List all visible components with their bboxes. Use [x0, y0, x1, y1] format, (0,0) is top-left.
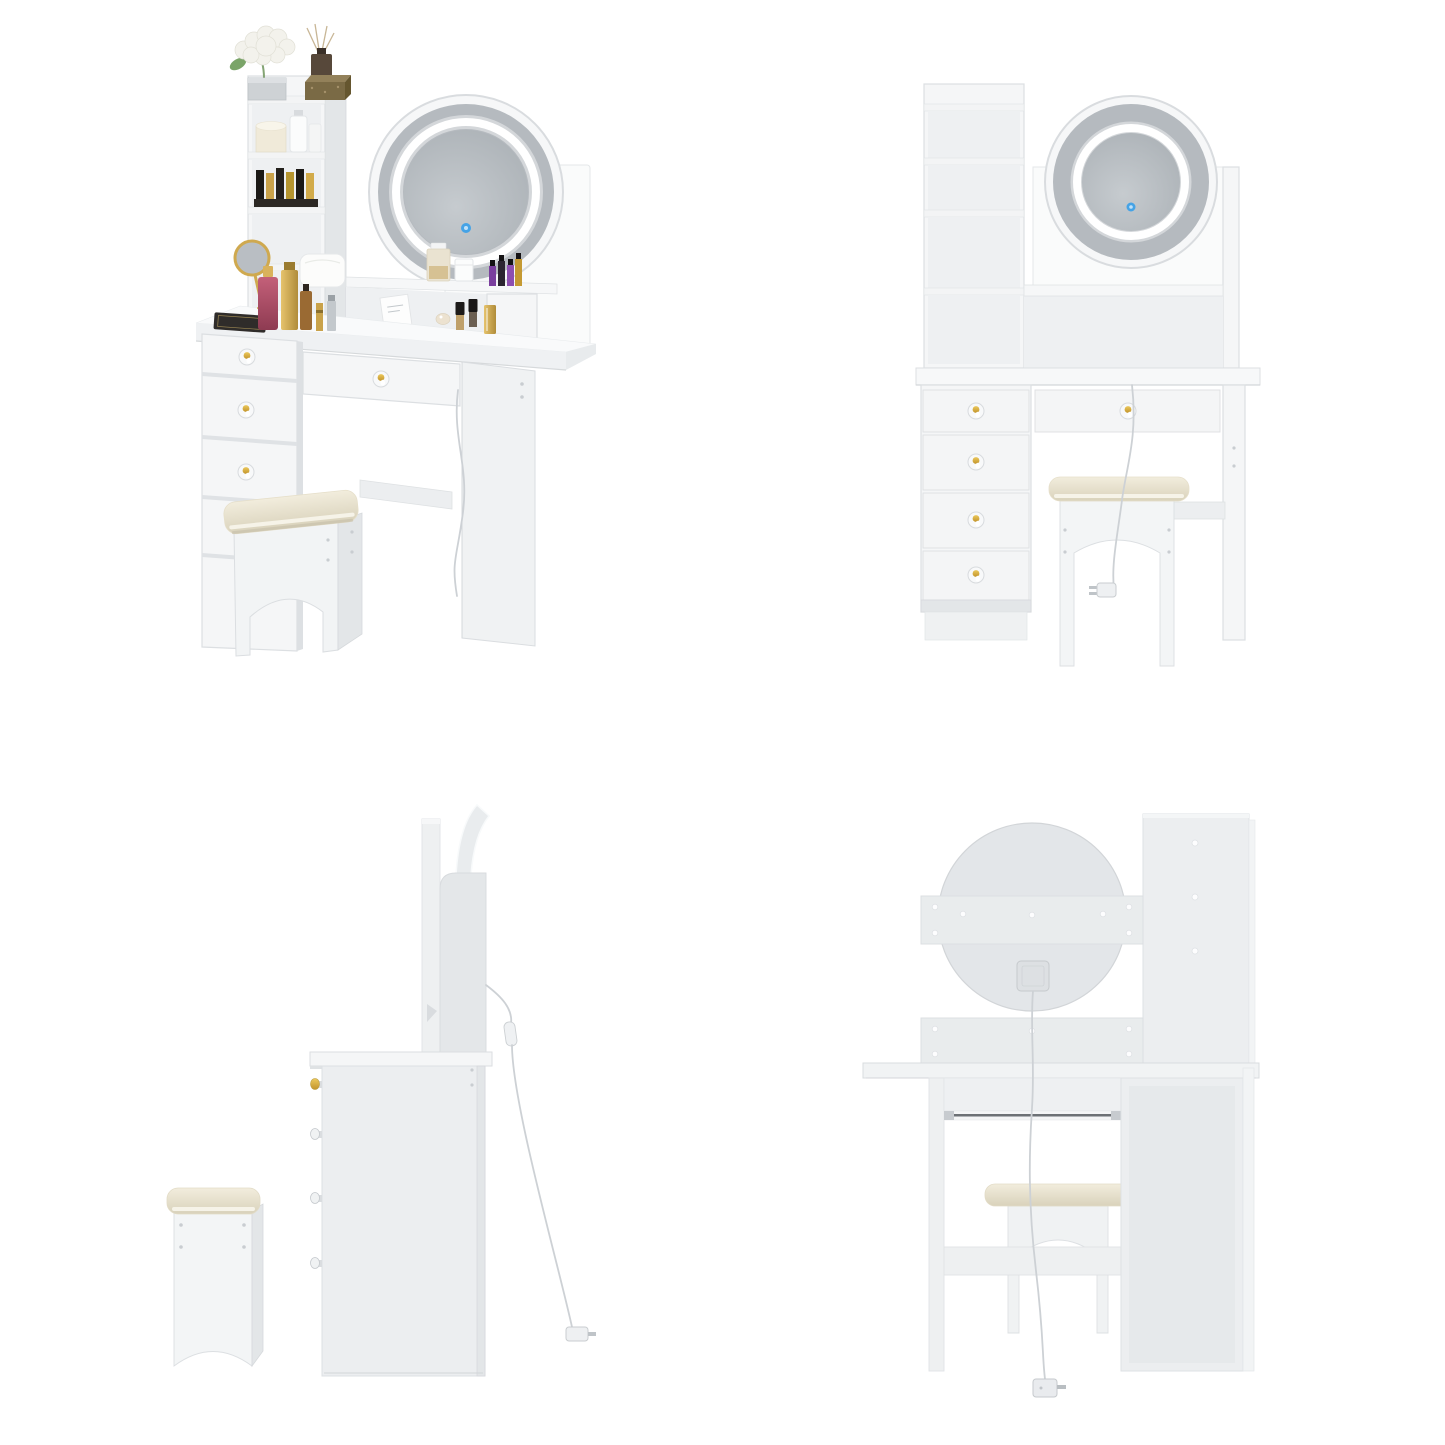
lipstick-box-set-decor: [254, 168, 318, 207]
stool-base: [174, 1213, 252, 1366]
drawer-knob: [238, 464, 254, 480]
drawer-knob-side: [311, 1079, 320, 1090]
product-image-grid: [0, 0, 1445, 1445]
shelf-tower: [924, 84, 1024, 368]
storage-pouch-decor: [300, 254, 345, 287]
wide-drawer: [1035, 390, 1220, 432]
gold-tube: [484, 305, 496, 334]
drawer-knob: [968, 512, 984, 528]
drawer-knob: [239, 349, 255, 365]
power-plug-icon: [566, 1327, 596, 1341]
drawer-knob-side: [311, 1129, 320, 1140]
power-plug-icon: [1089, 583, 1116, 597]
mirror-support-post: [1223, 167, 1239, 368]
back-panel-upper: [921, 896, 1143, 944]
display-tray: [254, 199, 318, 207]
desk-side: [310, 805, 492, 1376]
left-leg-panel: [929, 1078, 944, 1371]
back-view-render: [723, 723, 1445, 1445]
support-bar: [360, 480, 452, 509]
desktop-edge: [310, 1052, 492, 1066]
power-cable-group: [486, 985, 596, 1341]
stool-base: [1060, 501, 1174, 666]
power-cable: [512, 1045, 572, 1327]
drawer-knob: [238, 402, 254, 418]
drawer-knob: [968, 567, 984, 583]
mirror-glass: [404, 130, 528, 254]
mirror-edge: [456, 805, 489, 875]
stool: [1049, 477, 1189, 666]
tower-back-panel: [1143, 814, 1255, 1063]
stool-cushion: [985, 1184, 1135, 1206]
desktop: [916, 368, 1260, 385]
view-back: [723, 723, 1445, 1445]
candle-decor: [256, 122, 286, 153]
drawer-knob-side: [311, 1193, 320, 1204]
touch-button-highlight: [464, 226, 468, 230]
gold-lipstick: [316, 303, 323, 331]
side-view-render: [0, 723, 722, 1445]
gold-box-decor: [305, 75, 351, 100]
view-side: [0, 723, 722, 1445]
cabinet-back: [1121, 1068, 1254, 1371]
right-leg-panel: [462, 362, 535, 646]
slide-rail: [953, 1114, 1113, 1117]
gold-perfume: [281, 262, 298, 330]
side-knobs: [311, 1079, 323, 1269]
silver-spray: [327, 295, 336, 331]
stool: [167, 1188, 263, 1366]
cable-connector: [503, 1021, 517, 1046]
front-view-render: [723, 0, 1445, 722]
right-leg-panel: [1223, 385, 1245, 640]
junction-box: [1017, 961, 1049, 991]
drawer-knob: [373, 371, 389, 387]
mirror-glass: [1082, 133, 1180, 231]
flower-decor: [228, 26, 295, 100]
support-bar: [944, 1247, 1121, 1275]
drawer-knob: [968, 403, 984, 419]
view-front: [723, 0, 1445, 722]
cream-jar: [455, 259, 473, 281]
power-plug-icon: [1033, 1379, 1066, 1397]
drawer-unit: [921, 385, 1031, 640]
desktop: [863, 1063, 1259, 1078]
hutch-shelf: [1024, 285, 1223, 368]
power-cable: [486, 985, 511, 1024]
angled-view-render: [0, 0, 722, 722]
led-mirror: [1045, 96, 1217, 268]
cabinet-side-panel: [322, 1066, 485, 1376]
drawer-knob-side: [311, 1258, 320, 1269]
pearl-cream: [436, 314, 450, 325]
drawer-knob: [968, 454, 984, 470]
mirror-support-panel: [440, 873, 486, 1052]
view-angled: [0, 0, 722, 722]
